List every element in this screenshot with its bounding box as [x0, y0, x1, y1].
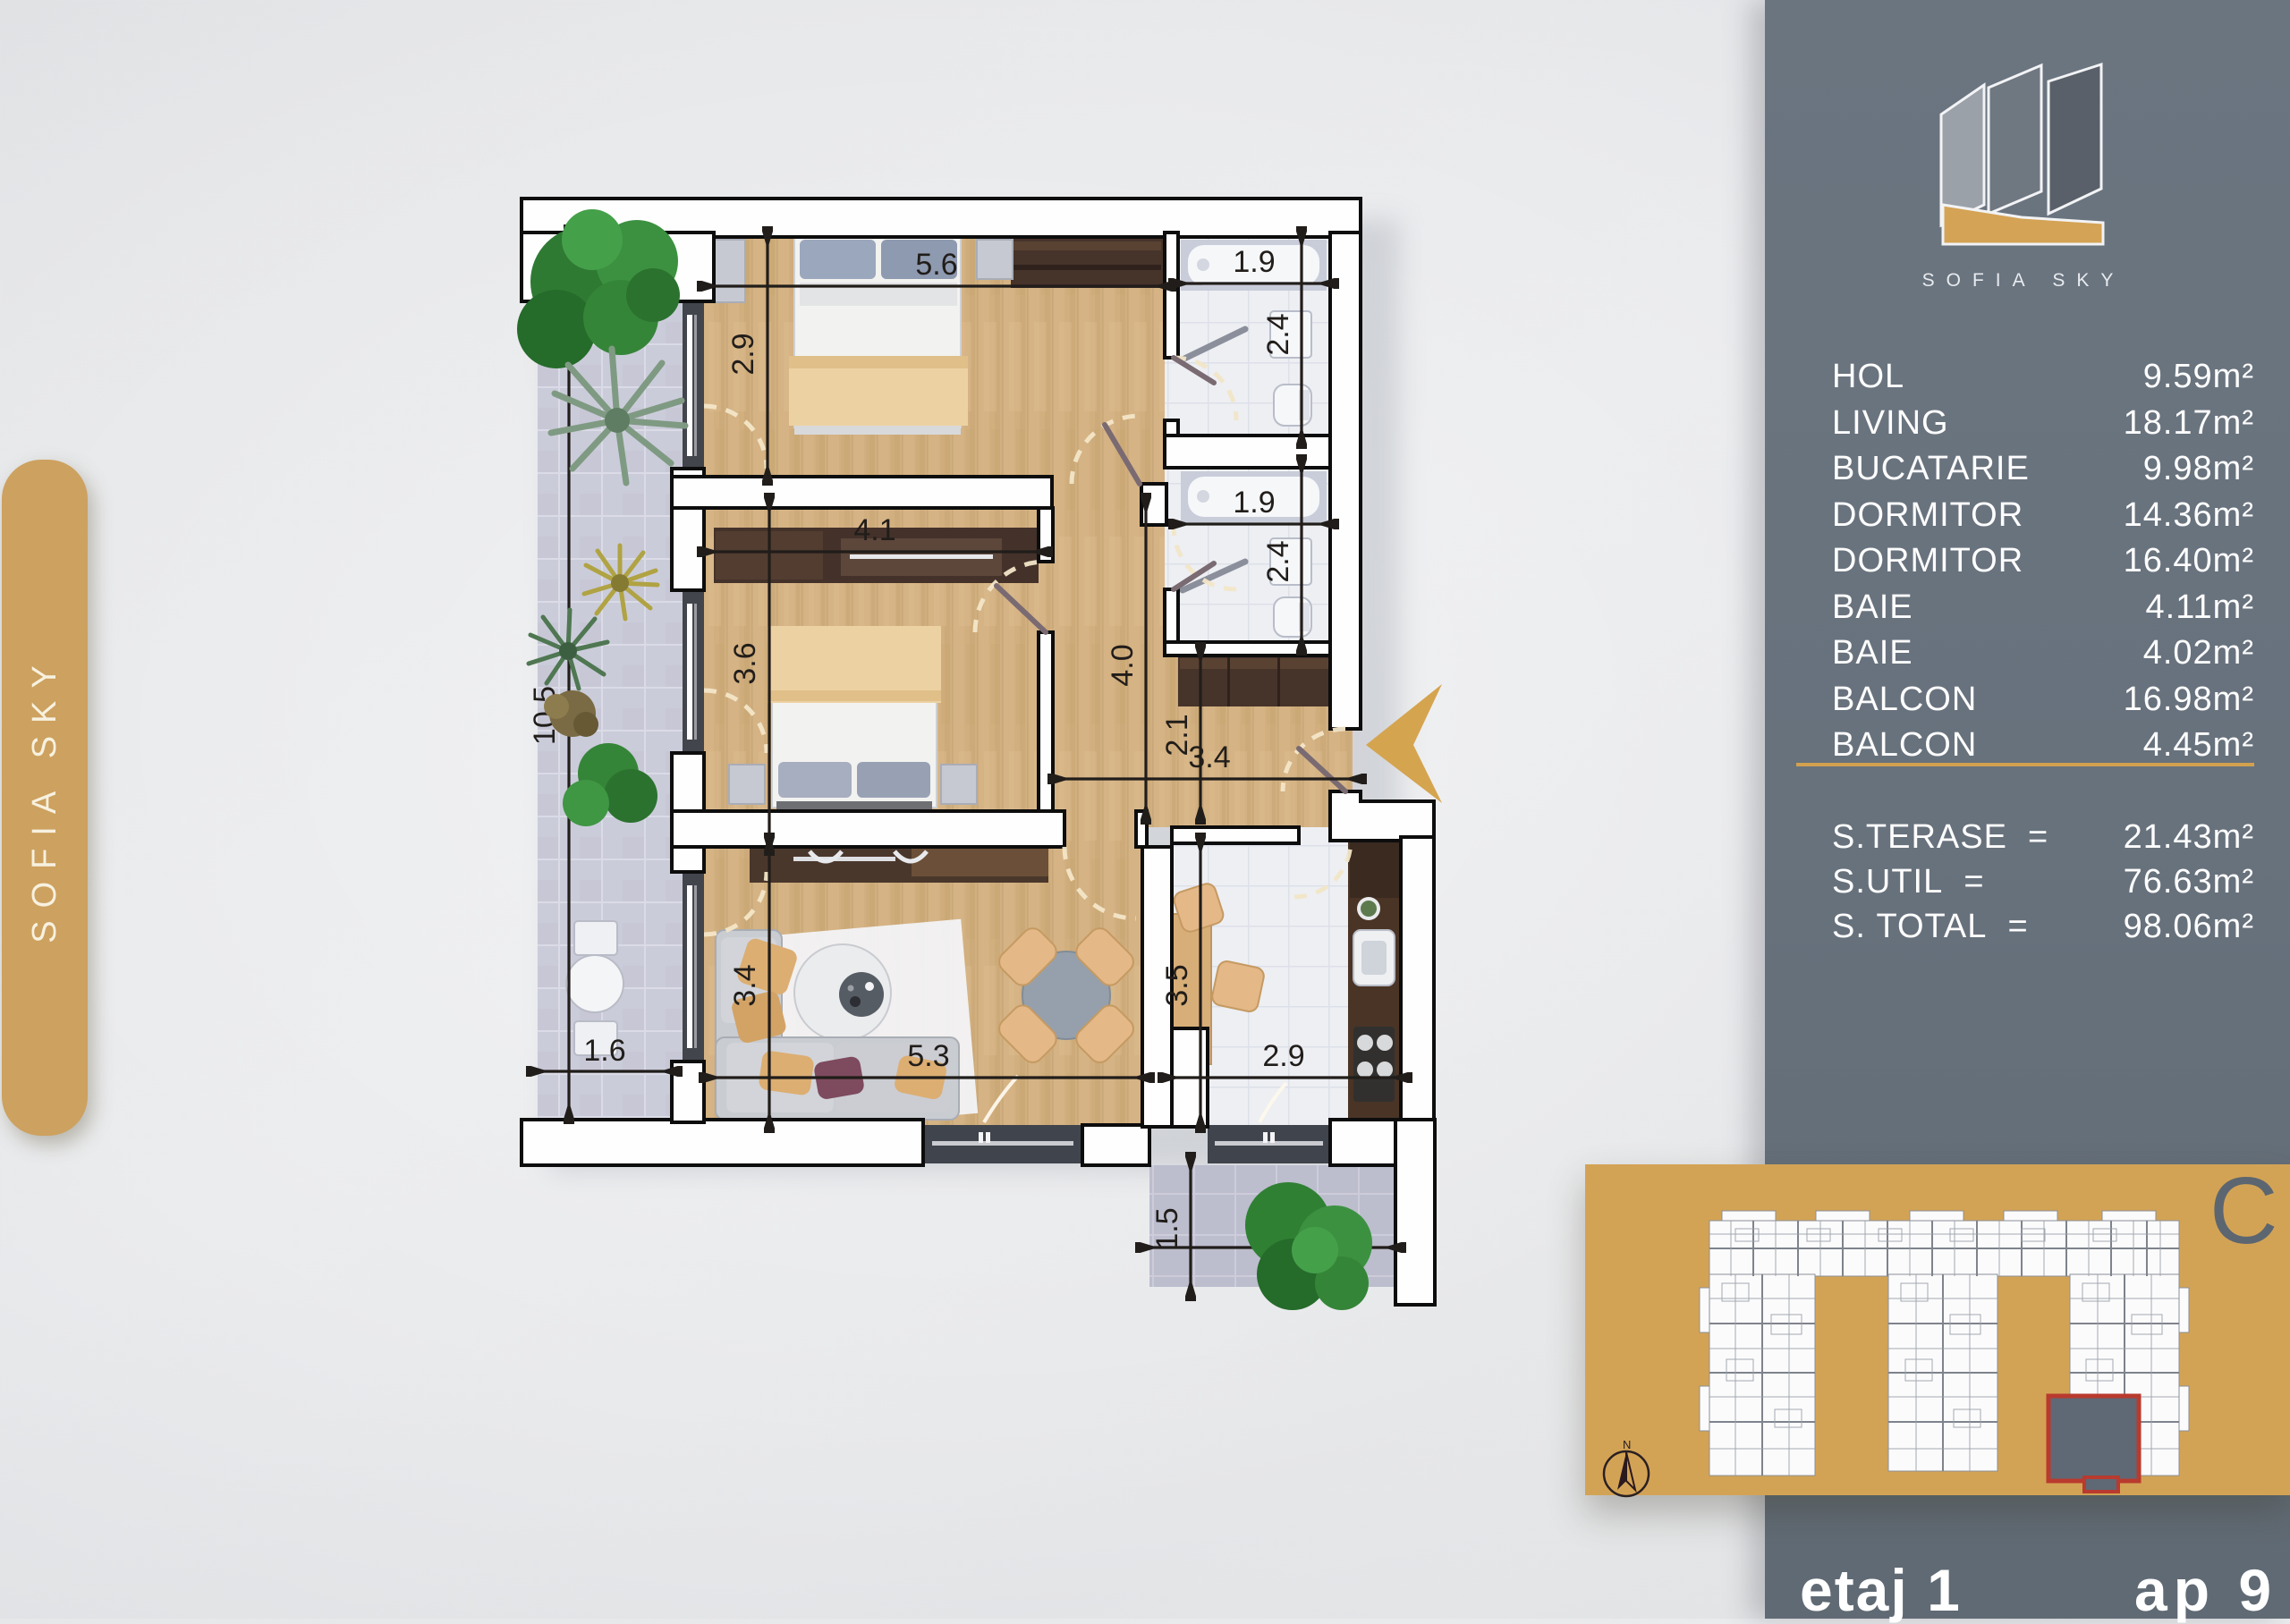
svg-text:1.6: 1.6	[583, 1034, 625, 1068]
svg-text:2.9: 2.9	[1262, 1039, 1304, 1073]
svg-text:2.4: 2.4	[1261, 313, 1295, 355]
svg-text:2.1: 2.1	[1160, 714, 1194, 756]
svg-text:4.0: 4.0	[1106, 644, 1140, 686]
svg-text:1.9: 1.9	[1233, 486, 1275, 520]
svg-text:1.9: 1.9	[1233, 245, 1275, 279]
svg-text:2.4: 2.4	[1261, 540, 1295, 582]
svg-text:4.1: 4.1	[853, 513, 895, 547]
svg-text:3.5: 3.5	[1160, 964, 1194, 1006]
svg-text:2.9: 2.9	[726, 333, 760, 375]
svg-text:3.6: 3.6	[728, 642, 762, 684]
svg-text:3.4: 3.4	[1188, 740, 1230, 774]
svg-text:5.6: 5.6	[915, 248, 957, 282]
svg-text:1.5: 1.5	[1150, 1207, 1184, 1249]
svg-text:3.4: 3.4	[728, 964, 762, 1006]
svg-text:5.3: 5.3	[907, 1039, 949, 1073]
